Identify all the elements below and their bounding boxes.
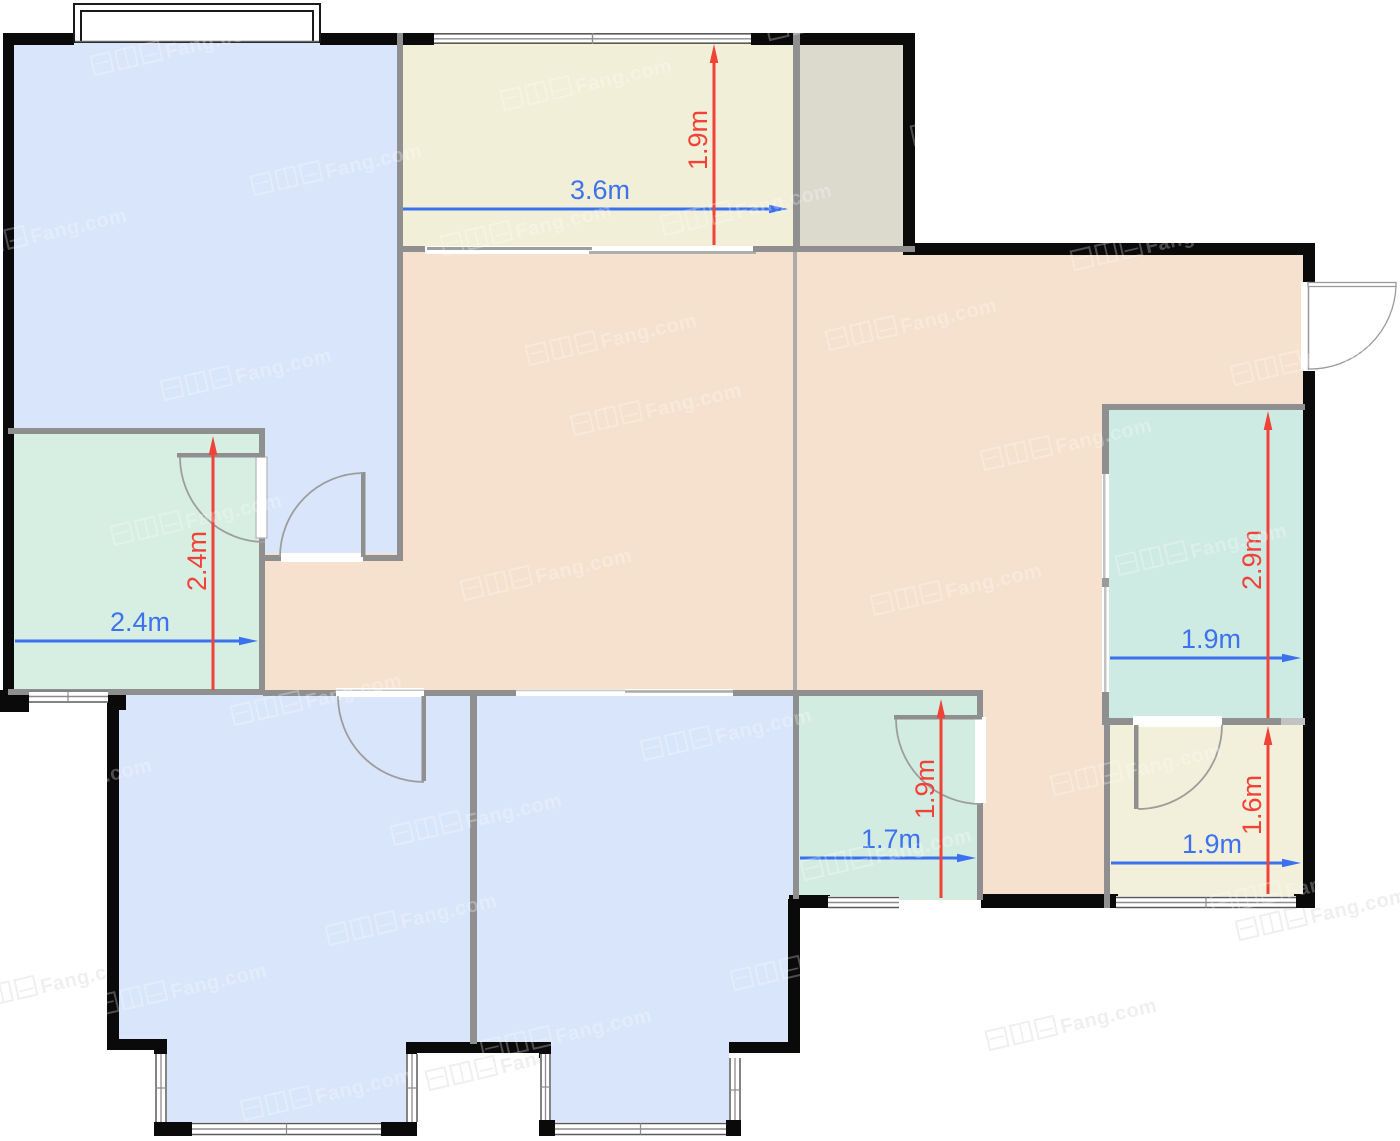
svg-text:1.6m: 1.6m xyxy=(1237,775,1267,835)
svg-text:1.9m: 1.9m xyxy=(910,759,940,819)
svg-text:3.6m: 3.6m xyxy=(570,175,630,205)
svg-text:1.9m: 1.9m xyxy=(1182,829,1242,859)
svg-text:1.9m: 1.9m xyxy=(1181,624,1241,654)
svg-text:2.4m: 2.4m xyxy=(110,607,170,637)
svg-text:1.9m: 1.9m xyxy=(683,110,713,170)
svg-text:2.4m: 2.4m xyxy=(182,531,212,591)
